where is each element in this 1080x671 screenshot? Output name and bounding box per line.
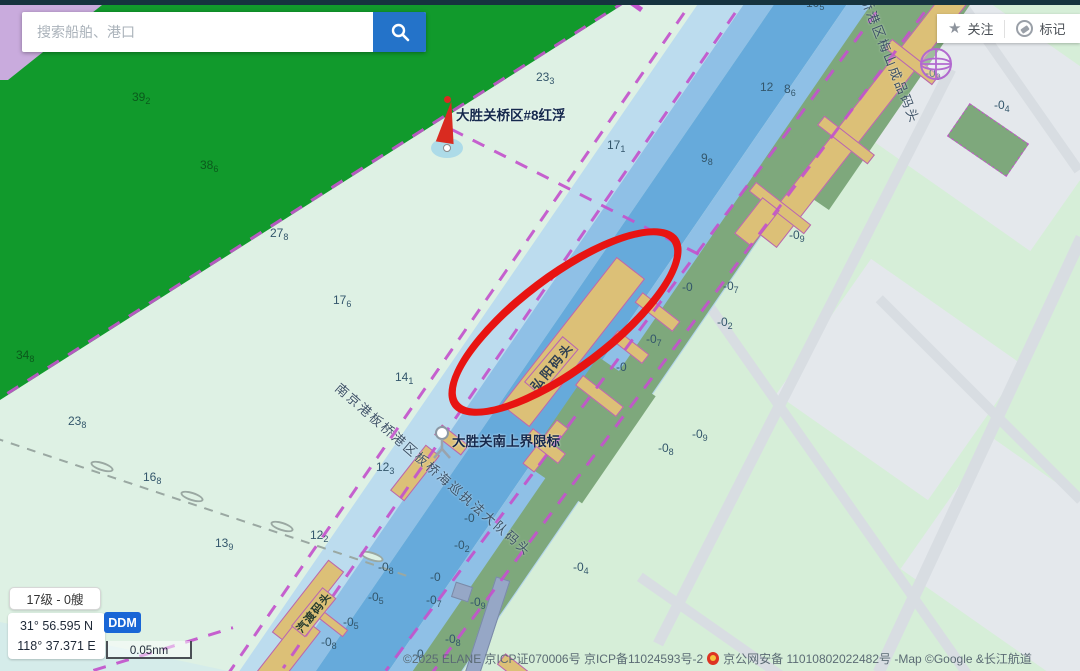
depth-sounding: -09 bbox=[470, 595, 486, 611]
zoom-level-ship-count-badge: 17级 - 0艘 bbox=[9, 587, 101, 610]
search-input[interactable] bbox=[22, 12, 373, 52]
search-button[interactable] bbox=[373, 12, 426, 52]
depth-sounding: -0 bbox=[430, 570, 441, 584]
depth-sounding: -08 bbox=[445, 632, 461, 648]
chart-map[interactable]: 3923863482782332381761711681411391231221… bbox=[0, 0, 1080, 671]
depth-sounding: -09 bbox=[692, 427, 708, 443]
depth-sounding: -07 bbox=[723, 279, 739, 295]
buoy-topmark bbox=[444, 96, 451, 103]
longitude-value: 118° 37.371 E bbox=[17, 636, 95, 656]
depth-sounding: 278 bbox=[270, 226, 288, 242]
depth-sounding: 98 bbox=[701, 151, 713, 167]
depth-sounding: 86 bbox=[784, 82, 796, 98]
star-icon: ★ bbox=[948, 21, 961, 36]
depth-sounding: 141 bbox=[395, 370, 413, 386]
depth-sounding: 386 bbox=[200, 158, 218, 174]
buoy-position-dot bbox=[443, 144, 451, 152]
depth-sounding: 233 bbox=[536, 70, 554, 86]
depth-sounding: 12 bbox=[760, 80, 773, 94]
ddm-format-button[interactable]: DDM bbox=[104, 612, 141, 633]
beacon-label: 大胜关南上界限标 bbox=[452, 430, 560, 450]
copyright-text-left: ©2025 ELANE 京ICP证070006号 京ICP备11024593号-… bbox=[403, 650, 703, 667]
coordinate-readout: 31° 56.595 N 118° 37.371 E bbox=[8, 613, 105, 659]
follow-button[interactable]: ★ 关注 bbox=[937, 14, 1004, 43]
mark-label: 标记 bbox=[1039, 19, 1065, 38]
police-badge-icon bbox=[707, 652, 719, 665]
depth-sounding: -02 bbox=[454, 538, 470, 554]
depth-sounding: -04 bbox=[573, 560, 589, 576]
depth-sounding: -08 bbox=[658, 441, 674, 457]
follow-label: 关注 bbox=[967, 19, 993, 38]
depth-sounding: -08 bbox=[378, 560, 394, 576]
depth-sounding: -07 bbox=[646, 332, 662, 348]
map-toolbar: ★ 关注 标记 bbox=[937, 14, 1080, 43]
depth-sounding: 392 bbox=[132, 90, 150, 106]
depth-sounding: 348 bbox=[16, 348, 34, 364]
depth-sounding: -02 bbox=[717, 315, 733, 331]
depth-sounding: -0 bbox=[682, 280, 693, 294]
latitude-value: 31° 56.595 N bbox=[20, 616, 93, 636]
search-icon bbox=[389, 21, 411, 43]
depth-sounding: -09 bbox=[789, 228, 805, 244]
top-dark-bar bbox=[0, 0, 1080, 5]
mark-button[interactable]: 标记 bbox=[1005, 14, 1076, 43]
depth-sounding: -04 bbox=[994, 98, 1010, 114]
depth-sounding: 123 bbox=[376, 460, 394, 476]
depth-sounding: -05 bbox=[343, 615, 359, 631]
buoy-label: 大胜关桥区#8红浮 bbox=[456, 104, 566, 124]
globe-icon bbox=[918, 46, 954, 82]
depth-sounding: 171 bbox=[607, 138, 625, 154]
depth-sounding: -07 bbox=[426, 593, 442, 609]
depth-sounding: 168 bbox=[143, 470, 161, 486]
depth-sounding: -0 bbox=[616, 360, 627, 374]
depth-sounding: 139 bbox=[215, 536, 233, 552]
copyright-footer: ©2025 ELANE 京ICP证070006号 京ICP备11024593号-… bbox=[403, 650, 1032, 667]
search-bar bbox=[22, 12, 426, 52]
copyright-text-right: 京公网安备 11010802022482号 -Map ©Google &长江航道 bbox=[723, 650, 1032, 667]
depth-sounding: 238 bbox=[68, 414, 86, 430]
depth-sounding: 176 bbox=[333, 293, 351, 309]
scale-value: 0.05nm bbox=[130, 645, 168, 657]
tag-icon bbox=[1016, 20, 1033, 37]
map-scale-bar: 0.05nm bbox=[106, 641, 192, 659]
depth-sounding: -05 bbox=[368, 590, 384, 606]
depth-sounding: -08 bbox=[321, 635, 337, 651]
depth-sounding: 122 bbox=[310, 528, 328, 544]
